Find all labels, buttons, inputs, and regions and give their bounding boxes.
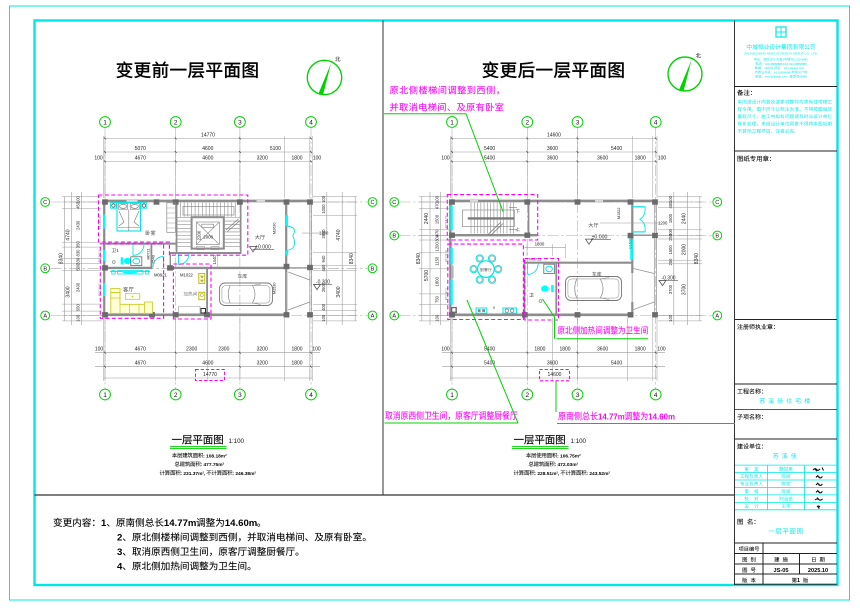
svg-text:1500: 1500 bbox=[668, 244, 673, 254]
svg-text:100: 100 bbox=[321, 314, 326, 322]
svg-text:3700: 3700 bbox=[668, 284, 673, 294]
svg-text:A: A bbox=[392, 313, 396, 319]
svg-text:2440: 2440 bbox=[681, 213, 687, 224]
svg-text:B: B bbox=[371, 266, 375, 272]
svg-text:1200: 1200 bbox=[658, 221, 668, 226]
svg-text:400: 400 bbox=[321, 303, 326, 311]
svg-text:4600: 4600 bbox=[202, 155, 213, 161]
svg-text:2300: 2300 bbox=[186, 347, 197, 353]
svg-text:100: 100 bbox=[435, 314, 440, 322]
svg-text:5400: 5400 bbox=[484, 155, 495, 161]
svg-text:100: 100 bbox=[435, 195, 440, 203]
svg-text:3400: 3400 bbox=[336, 286, 342, 297]
svg-text:100: 100 bbox=[441, 347, 450, 353]
svg-text:TEL:010-6886: TEL:010-6886 bbox=[790, 58, 808, 62]
svg-text:4670: 4670 bbox=[135, 361, 146, 367]
svg-text:: 246.38m²: : 246.38m² bbox=[232, 471, 256, 477]
svg-text:4600: 4600 bbox=[202, 146, 213, 152]
svg-text:: 108.18m²: : 108.18m² bbox=[203, 453, 227, 459]
svg-text:14.77m: 14.77m bbox=[164, 518, 197, 529]
svg-text:1500: 1500 bbox=[668, 213, 673, 223]
svg-text:2: 2 bbox=[174, 119, 178, 126]
svg-text:14600: 14600 bbox=[548, 372, 562, 378]
svg-text:1800: 1800 bbox=[291, 155, 302, 161]
svg-text:2430: 2430 bbox=[76, 220, 81, 230]
svg-text:2: 2 bbox=[525, 392, 529, 399]
svg-text:1: 1 bbox=[450, 392, 454, 399]
svg-text:1800: 1800 bbox=[635, 155, 646, 161]
svg-text:750: 750 bbox=[435, 295, 440, 303]
svg-text:1200: 1200 bbox=[435, 241, 440, 251]
svg-text:C: C bbox=[392, 200, 396, 206]
svg-text:250: 250 bbox=[668, 233, 673, 241]
svg-text:1800: 1800 bbox=[291, 361, 302, 367]
svg-text:4: 4 bbox=[309, 392, 313, 399]
svg-text:1800: 1800 bbox=[534, 347, 545, 353]
svg-text:100: 100 bbox=[94, 155, 103, 161]
svg-text:5400: 5400 bbox=[484, 146, 495, 152]
svg-text:zchy-design.com: zchy-design.com bbox=[784, 66, 805, 70]
svg-text:1: 1 bbox=[103, 392, 107, 399]
svg-text:1: 1 bbox=[101, 518, 107, 529]
svg-text:940: 940 bbox=[321, 255, 326, 263]
svg-text:100: 100 bbox=[321, 195, 326, 203]
svg-text:500: 500 bbox=[76, 304, 81, 312]
svg-text:B: B bbox=[392, 233, 396, 239]
svg-text:14.60m: 14.60m bbox=[225, 518, 258, 529]
svg-text:2400: 2400 bbox=[76, 282, 81, 292]
svg-text:470: 470 bbox=[435, 201, 440, 209]
svg-text:5700: 5700 bbox=[424, 270, 430, 281]
svg-text:1:100: 1:100 bbox=[571, 438, 587, 445]
svg-text:B: B bbox=[715, 233, 719, 239]
svg-text:3400: 3400 bbox=[66, 286, 72, 297]
svg-text:14.77m: 14.77m bbox=[598, 413, 625, 422]
svg-text:1500: 1500 bbox=[435, 214, 440, 224]
svg-text:66886: 66886 bbox=[799, 75, 807, 79]
svg-text:ZHONGCHENG HENGYE DESIGN GROUP: ZHONGCHENG HENGYE DESIGN GROUP CO., LTD. bbox=[744, 52, 818, 56]
svg-text:3: 3 bbox=[238, 119, 242, 126]
svg-text:3600: 3600 bbox=[547, 361, 558, 367]
svg-text:100: 100 bbox=[668, 314, 673, 322]
svg-text:: 477.75m²: : 477.75m² bbox=[201, 462, 225, 468]
svg-text:M1022: M1022 bbox=[180, 272, 194, 277]
svg-text:1540: 1540 bbox=[151, 254, 156, 264]
svg-text:8340: 8340 bbox=[416, 253, 422, 264]
svg-text:3600: 3600 bbox=[597, 155, 608, 161]
svg-text:1: 1 bbox=[450, 119, 454, 126]
svg-text:400: 400 bbox=[668, 201, 673, 209]
svg-text:5100: 5100 bbox=[270, 146, 281, 152]
svg-text:14770: 14770 bbox=[203, 372, 217, 378]
svg-text:2000: 2000 bbox=[203, 234, 213, 239]
svg-text:1800: 1800 bbox=[635, 347, 646, 353]
svg-text:3600: 3600 bbox=[597, 347, 608, 353]
svg-text:4740: 4740 bbox=[66, 229, 72, 240]
svg-text:C1520: C1520 bbox=[629, 238, 633, 249]
svg-text:C: C bbox=[43, 200, 47, 206]
svg-text:8340: 8340 bbox=[349, 253, 355, 264]
svg-text:1150: 1150 bbox=[435, 256, 440, 266]
svg-text:A1310066886: A1310066886 bbox=[774, 70, 791, 74]
svg-text:14600: 14600 bbox=[547, 132, 561, 138]
svg-text:2440: 2440 bbox=[424, 213, 430, 224]
svg-text:3: 3 bbox=[576, 119, 580, 126]
svg-text:M1822: M1822 bbox=[617, 208, 621, 220]
svg-text:5400: 5400 bbox=[484, 347, 495, 353]
svg-text:14770: 14770 bbox=[201, 132, 215, 138]
svg-text:300: 300 bbox=[435, 234, 440, 242]
svg-text:100: 100 bbox=[313, 155, 322, 161]
svg-text:8340: 8340 bbox=[694, 253, 700, 264]
svg-text:: 106.75m²: : 106.75m² bbox=[557, 453, 581, 459]
svg-text:330: 330 bbox=[76, 257, 81, 265]
svg-text:4740: 4740 bbox=[336, 229, 342, 240]
svg-text:350: 350 bbox=[76, 241, 81, 249]
svg-text:M2630: M2630 bbox=[272, 223, 276, 235]
svg-text:3: 3 bbox=[117, 547, 122, 558]
svg-text:B: B bbox=[43, 266, 47, 272]
svg-text:450: 450 bbox=[76, 201, 81, 209]
svg-text:100: 100 bbox=[76, 314, 81, 322]
svg-text:1440: 1440 bbox=[212, 255, 217, 265]
svg-text:1800: 1800 bbox=[435, 276, 440, 286]
svg-text:M2530: M2530 bbox=[273, 283, 277, 295]
svg-text:3: 3 bbox=[238, 392, 242, 399]
svg-text:4670: 4670 bbox=[135, 155, 146, 161]
svg-text:4: 4 bbox=[309, 119, 313, 126]
svg-text:100: 100 bbox=[441, 155, 450, 161]
svg-text:100: 100 bbox=[95, 347, 104, 353]
svg-text:zchy@design.com: zchy@design.com bbox=[765, 75, 788, 79]
svg-text:4: 4 bbox=[654, 119, 658, 126]
svg-text:1800: 1800 bbox=[291, 347, 302, 353]
svg-text:250: 250 bbox=[668, 258, 673, 266]
svg-text:2025.10: 2025.10 bbox=[808, 568, 828, 574]
svg-text:4600: 4600 bbox=[202, 361, 213, 367]
svg-text:4: 4 bbox=[117, 562, 123, 573]
svg-text:010-68868886 FAX:010-68868889: 010-68868886 FAX:010-68868889 bbox=[765, 62, 807, 66]
svg-text:C: C bbox=[370, 200, 374, 206]
svg-text:1800: 1800 bbox=[559, 347, 570, 353]
svg-text:5070: 5070 bbox=[135, 146, 146, 152]
svg-text:5400: 5400 bbox=[611, 146, 622, 152]
svg-text:2: 2 bbox=[117, 533, 122, 544]
svg-text:4: 4 bbox=[654, 392, 658, 399]
svg-text:1: 1 bbox=[797, 578, 800, 584]
svg-text:: 243.52m²: : 243.52m² bbox=[586, 471, 610, 477]
svg-text:1200: 1200 bbox=[319, 231, 329, 236]
svg-text:JS-05: JS-05 bbox=[774, 568, 789, 574]
svg-text:A: A bbox=[43, 313, 47, 319]
svg-text:2300: 2300 bbox=[218, 347, 229, 353]
svg-text:3200: 3200 bbox=[257, 347, 268, 353]
svg-text:100071: 100071 bbox=[764, 66, 774, 70]
svg-text:3: 3 bbox=[576, 392, 580, 399]
svg-text:3200: 3200 bbox=[257, 155, 268, 161]
svg-text:A: A bbox=[371, 313, 375, 319]
svg-text:3600: 3600 bbox=[547, 155, 558, 161]
svg-text:2: 2 bbox=[525, 119, 529, 126]
svg-text:8340: 8340 bbox=[59, 253, 65, 264]
svg-text:2: 2 bbox=[174, 392, 178, 399]
svg-text:3700: 3700 bbox=[681, 284, 687, 295]
svg-text:830: 830 bbox=[76, 249, 81, 257]
svg-text:100: 100 bbox=[658, 155, 667, 161]
svg-text:100: 100 bbox=[312, 347, 321, 353]
svg-text:: 231.37m²,: : 231.37m², bbox=[180, 471, 206, 477]
svg-text:1: 1 bbox=[116, 248, 119, 254]
svg-text:5400: 5400 bbox=[611, 361, 622, 367]
svg-text:3600: 3600 bbox=[547, 146, 558, 152]
svg-text:M0921: M0921 bbox=[154, 272, 168, 277]
svg-text:2000: 2000 bbox=[681, 244, 687, 255]
svg-text:1800: 1800 bbox=[535, 242, 545, 247]
svg-text:FC2415: FC2415 bbox=[445, 216, 449, 228]
svg-text:: 228.51m²,: : 228.51m², bbox=[534, 471, 560, 477]
svg-text:100: 100 bbox=[657, 347, 666, 353]
svg-text:A: A bbox=[715, 313, 719, 319]
svg-text:400: 400 bbox=[321, 264, 326, 272]
svg-text:1000: 1000 bbox=[321, 204, 326, 214]
svg-text:C: C bbox=[715, 200, 719, 206]
svg-text:: 472.03m²: : 472.03m² bbox=[555, 462, 579, 468]
svg-text:1: 1 bbox=[103, 119, 107, 126]
svg-text:3200: 3200 bbox=[257, 361, 268, 367]
svg-text:2200: 2200 bbox=[197, 230, 202, 240]
svg-text:1:100: 1:100 bbox=[229, 438, 245, 445]
svg-text:4670: 4670 bbox=[135, 347, 146, 353]
svg-text:14.60m: 14.60m bbox=[648, 413, 675, 422]
svg-text:500: 500 bbox=[76, 263, 81, 271]
